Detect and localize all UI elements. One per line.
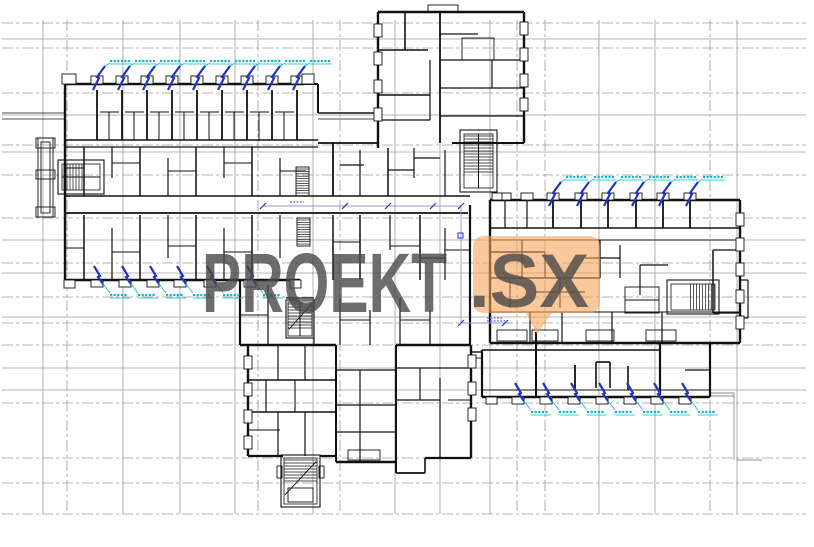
detail-rect <box>462 38 494 60</box>
marker-leader <box>186 284 193 293</box>
window-bump <box>520 48 528 61</box>
marker-leader <box>205 63 210 66</box>
marker-leader <box>580 401 587 410</box>
window-marker <box>143 61 182 90</box>
window-marker <box>268 61 307 90</box>
marker-leader <box>180 63 185 66</box>
marker-leader <box>105 63 110 66</box>
window-bump <box>62 74 76 84</box>
marker-leader <box>130 63 135 66</box>
marker-leader <box>280 63 285 66</box>
marker-leader <box>616 179 621 182</box>
window-bump <box>468 382 476 395</box>
marker-leader <box>155 63 160 66</box>
detail-rect <box>348 450 380 460</box>
window-bump <box>244 356 252 369</box>
marker-leader <box>524 401 531 410</box>
window-marker <box>243 61 282 90</box>
window-bump <box>468 408 476 421</box>
detail-rect <box>36 207 55 217</box>
window-bump <box>736 290 744 303</box>
marker-leader <box>131 284 138 293</box>
marker-leader <box>636 401 643 410</box>
shaft <box>296 167 309 196</box>
marker-leader <box>671 179 676 182</box>
window-bump <box>374 80 382 93</box>
marker-leader <box>552 401 559 410</box>
window-marker <box>118 61 157 90</box>
dimension-node <box>458 233 463 238</box>
window-bump <box>736 316 744 329</box>
window-bump <box>521 193 533 200</box>
window-bump <box>520 74 528 87</box>
detail-rect <box>586 330 614 341</box>
staircase <box>460 130 497 192</box>
detail-rect <box>38 138 53 217</box>
window-bump <box>244 436 252 449</box>
watermark-text-sx: .SX <box>469 239 589 324</box>
window-marker <box>93 61 132 90</box>
window-bump <box>492 193 502 200</box>
window-bump <box>736 263 744 276</box>
marker-leader <box>255 63 260 66</box>
window-bump <box>64 280 75 288</box>
window-bump <box>736 238 744 251</box>
detail-rect <box>36 170 55 179</box>
marker-leader <box>103 284 110 293</box>
staircase <box>281 455 320 507</box>
marker-leader <box>663 401 670 410</box>
window-bump <box>302 74 314 84</box>
window-marker <box>193 61 232 90</box>
window-bump <box>520 98 528 111</box>
detail-rect <box>41 142 50 213</box>
window-marker <box>168 61 207 90</box>
marker-leader <box>691 401 698 410</box>
window-bump <box>374 108 382 121</box>
window-bump <box>244 410 252 423</box>
marker-leader <box>698 179 703 182</box>
detail-rect <box>497 330 527 341</box>
marker-leader <box>159 284 166 293</box>
window-bump <box>244 383 252 396</box>
floor-plan-screenshot: PROEKT .SX <box>0 0 814 547</box>
window-bump <box>374 52 382 65</box>
marker-leader <box>608 401 615 410</box>
marker-leader <box>561 179 566 182</box>
window-bump <box>486 397 497 404</box>
marker-leader <box>589 179 594 182</box>
window-bump <box>374 24 382 37</box>
window-marker <box>218 61 257 90</box>
detail-rect <box>36 138 55 148</box>
floor-plan-canvas: PROEKT .SX <box>0 0 814 547</box>
window-bump <box>520 22 528 35</box>
watermark-text-proekt: PROEKT <box>202 236 447 330</box>
window-bump <box>736 213 744 226</box>
window-bump <box>468 355 476 368</box>
marker-leader <box>305 63 310 66</box>
window-marker <box>686 177 725 206</box>
marker-leader <box>644 179 649 182</box>
detail-rect <box>646 330 676 341</box>
stair-landing <box>288 488 313 502</box>
marker-leader <box>230 63 235 66</box>
